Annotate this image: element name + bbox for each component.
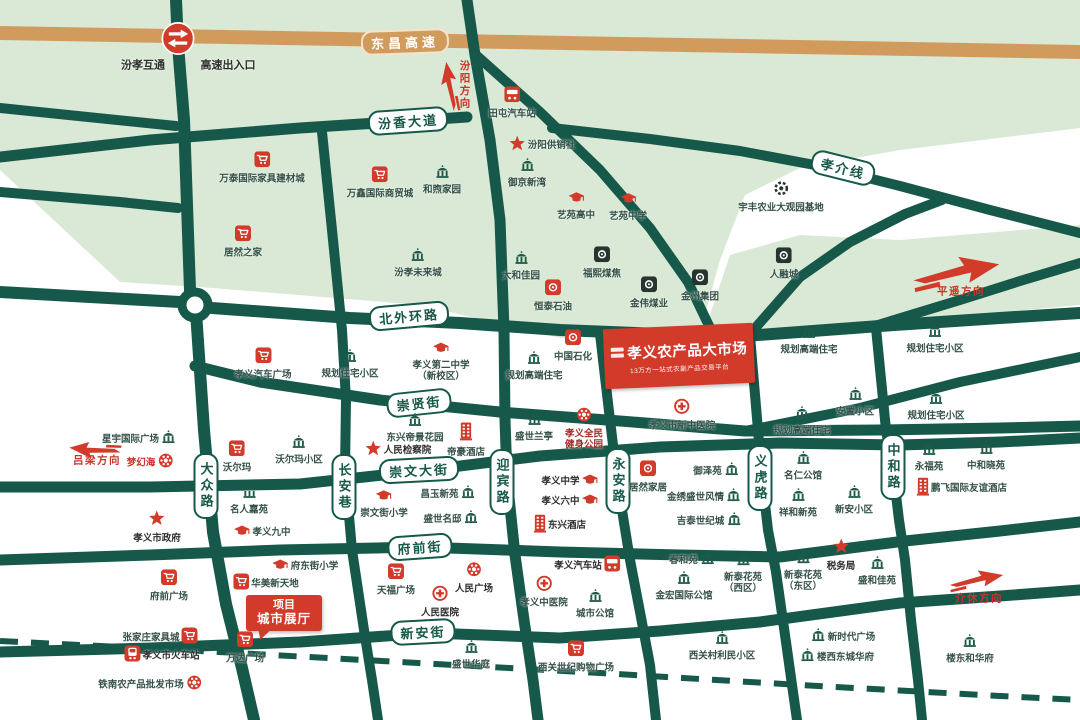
road: [0, 522, 1080, 560]
project-exhibition-hall-callout: 项目 城市展厅: [246, 595, 322, 631]
banner-title: 孝义农产品大市场: [627, 337, 748, 363]
callout-line2: 城市展厅: [257, 612, 311, 626]
direction-arrow-icon: [438, 60, 467, 112]
road-label-capsule: 中和路: [881, 434, 906, 500]
road-label-capsule: 迎宾路: [490, 449, 515, 515]
road-label-capsule: 崇文大街: [378, 455, 459, 484]
road: [876, 328, 922, 720]
road-label-capsule: 大众路: [194, 453, 219, 519]
road-label-capsule: 长安巷: [332, 454, 357, 520]
road-network: [0, 0, 1080, 720]
road: [745, 357, 1080, 431]
road-label-capsule: 府前街: [387, 532, 454, 561]
road-label-highway: 东昌高速: [361, 28, 450, 56]
banner-subtitle: 13万方一站式农副产品交易平台: [630, 360, 730, 374]
roundabout: [182, 292, 208, 318]
road: [0, 438, 1080, 487]
road: [750, 336, 797, 720]
road-label-capsule: 新安街: [390, 618, 456, 646]
road-label-capsule: 永安路: [606, 448, 631, 514]
project-market-banner: 孝义农产品大市场 13万方一站式农副产品交易平台: [603, 323, 755, 389]
map-canvas: 孝义农产品大市场 13万方一站式农副产品交易平台 项目 城市展厅 东昌高速汾香大…: [0, 0, 1080, 720]
banner-logo: [610, 347, 623, 358]
road-label-capsule: 义虎路: [748, 445, 773, 511]
road: [600, 334, 656, 720]
callout-line1: 项目: [273, 599, 295, 612]
